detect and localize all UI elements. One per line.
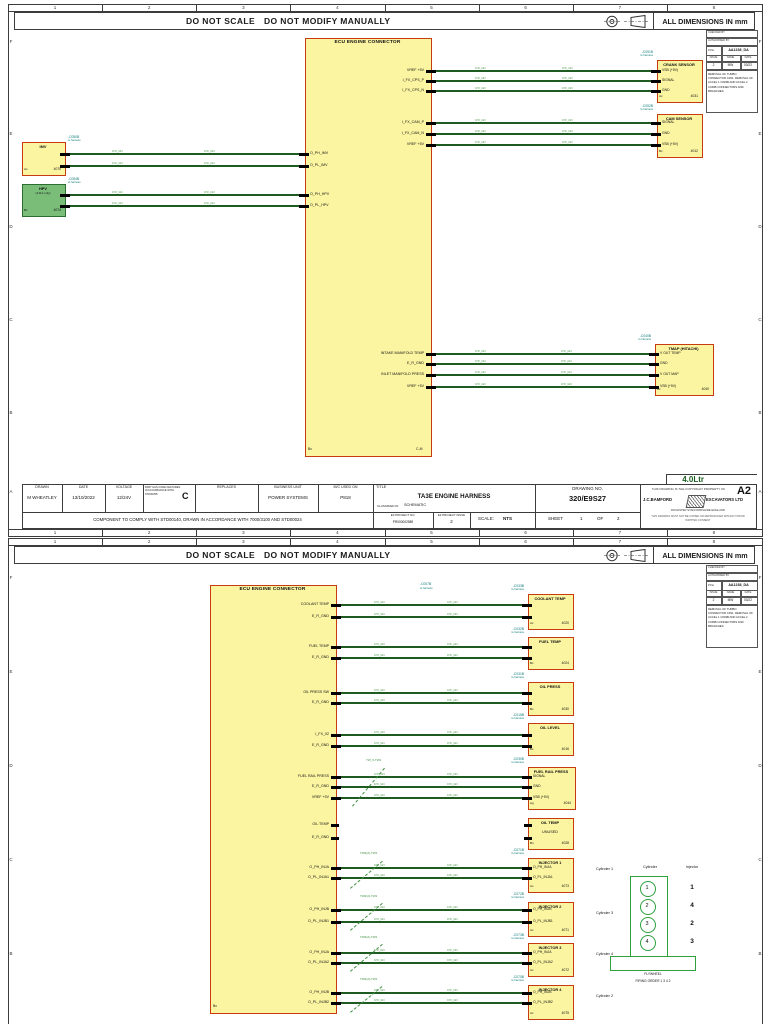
block-designator: Bx (530, 748, 534, 751)
pin-stub (524, 837, 531, 840)
block-pin-label: SIGNAL (662, 79, 674, 82)
pin-stub (429, 353, 436, 356)
block-code: 4072 (552, 969, 569, 972)
block-title: OIL TEMP (528, 821, 572, 825)
block-title: FUEL TEMP (528, 640, 572, 644)
wire-gauge-label: 0.5²_GN (561, 350, 572, 353)
block-code: 4016 (552, 748, 569, 751)
row-letter-right: D (757, 764, 763, 769)
pin-stub (429, 363, 436, 366)
company-address: ROCESTER STAFFORDSHIRE ENGLAND (642, 509, 754, 512)
wire (335, 921, 528, 922)
ecu-pin-label: I_FX_CPS_N (336, 89, 424, 93)
sheet-of-word: 1 (580, 517, 583, 522)
title-block-header: BUSINESS UNIT (258, 486, 318, 490)
pin-stub (522, 776, 529, 779)
title-block-header: VOLTAGE (105, 486, 143, 490)
pin-stub (522, 867, 529, 870)
block-title: INJECTOR 1 (528, 861, 572, 865)
wire-gauge-label: 0.5²_GN (374, 643, 385, 646)
title-block-value: M WHEATLEY (22, 496, 62, 501)
ecu-pin-label: E_R_GND (241, 701, 329, 705)
wire-gauge-label: 0.5²_GN (562, 119, 573, 122)
block-pin-label: VSB (+5V) (660, 385, 676, 388)
wire-gauge-label: 0.5²_GN (562, 77, 573, 80)
wire (335, 692, 528, 693)
wire-gauge-label: 0.5²_GN (475, 383, 486, 386)
ecu-pin-label: E_R_GND (241, 615, 329, 619)
e3-project-no: PR000002589 (373, 521, 433, 524)
pin-stub (522, 1002, 529, 1005)
pin-stub (429, 80, 436, 83)
block-designator: Ax (657, 388, 661, 391)
ecu-pin-label: FUEL TEMP (241, 645, 329, 649)
block-pin-label: GND (662, 132, 670, 135)
connector-note: to harness (613, 109, 653, 112)
ruler-number: 7 (573, 6, 667, 11)
title-block-hline (22, 512, 640, 513)
pin-stub (649, 386, 656, 389)
ecu-pin-label: O_PH_HPV (310, 193, 329, 197)
ruler-base (8, 529, 763, 530)
ruler-number: 6 (479, 531, 573, 536)
pin-stub (334, 702, 341, 705)
pin-stub (334, 657, 341, 660)
row-letter-left: D (8, 225, 14, 230)
ruler-number: 2 (102, 540, 196, 545)
ruler-number: 6 (479, 540, 573, 545)
do-not-scale-label: DO NOT SCALE (186, 17, 255, 26)
pin-stub (334, 921, 341, 924)
copyright-line: THIS DRAWING IS THE COPYRIGHT PROPERTY O… (641, 488, 736, 491)
ecu-block (305, 38, 432, 457)
wire (430, 353, 655, 354)
wire-gauge-label: 0.5²_GN (374, 742, 385, 745)
wire (430, 70, 657, 71)
connector-note: to harness (68, 140, 81, 143)
company-name-right: EXCAVATORS LTD (706, 498, 743, 502)
ecu-pin-label: VREF +5V (336, 143, 424, 147)
wire-gauge-label: 0.5²_GN (561, 371, 572, 374)
injector-number: 2 (676, 921, 708, 928)
connector-note: to harness (484, 938, 524, 941)
pin-stub (429, 90, 436, 93)
wire-gauge-label: 0.5²_GN (475, 141, 486, 144)
schematic-canvas: 12345678DO NOT SCALEDO NOT MODIFY MANUAL… (0, 0, 768, 1024)
wire (335, 616, 528, 617)
wire-gauge-label: 0.5²_GN (447, 918, 458, 921)
part-number-value: AA1238_DA (721, 584, 756, 588)
wire-gauge-label: 0.5²_GN (447, 864, 458, 867)
wire-gauge-label: 0.5²_GN (374, 783, 385, 786)
sheet-of-word: 2 (617, 517, 620, 522)
ecu-designator: Bx (213, 1005, 217, 1008)
revision-col-label: NAME (721, 57, 740, 60)
projection-icon (604, 15, 650, 28)
ecu-pin-label: O_PL_INJA1 (241, 876, 329, 880)
wire-gauge-label: 0.5²_GN (562, 141, 573, 144)
splice-label: TW_5-TW1 (366, 759, 381, 762)
block-title: CRANK SENSOR (657, 63, 701, 67)
pin-stub (649, 374, 656, 377)
revision-note: REMOVAL OF TURBO CONNECTOR C091. REMOVAL… (708, 607, 754, 628)
wire-gauge-label: 0.5²_GN (562, 130, 573, 133)
row-letter-right: E (757, 132, 763, 137)
wire-gauge-label: 0.5²_GN (475, 67, 486, 70)
block-code: 4031 (681, 95, 698, 98)
row-letter-left: B (8, 952, 14, 957)
pin-stub (522, 702, 529, 705)
block-code: 4074 (44, 209, 61, 212)
pin-stub (299, 194, 306, 197)
pin-stub (334, 692, 341, 695)
wire (430, 90, 657, 91)
wire (335, 786, 528, 787)
title-block-vline (143, 484, 144, 512)
sheet-size: A2 (733, 486, 755, 497)
block-title: OIL PRESS (528, 685, 572, 689)
block-pin-label: O_PH_INJB (533, 908, 551, 911)
wire-gauge-label: 0.5²_GN (374, 699, 385, 702)
wire (430, 80, 657, 81)
revision-value: MW (721, 64, 740, 67)
connector-note: to harness (613, 55, 653, 58)
revision-value: 03/22 (740, 64, 756, 67)
block-code: 4030 (552, 708, 569, 711)
header-sep (653, 12, 654, 30)
block-pin-label: SIGNAL (533, 775, 545, 778)
ruler-number: 1 (8, 531, 102, 536)
pin-stub (522, 992, 529, 995)
wire (335, 604, 528, 605)
pin-stub (651, 144, 658, 147)
pin-stub (522, 646, 529, 649)
jcb-logo-icon (686, 495, 707, 508)
ecu-pin-label: VREF +5V (336, 385, 424, 389)
block-code: 4040 (692, 388, 709, 391)
cylinder-number: 2 (640, 904, 654, 910)
wire-gauge-label: 0.5²_GN (447, 643, 458, 646)
pin-stub (651, 133, 658, 136)
pin-stub (522, 657, 529, 660)
pin-stub (429, 386, 436, 389)
part-number-value: AA1238_DA (721, 49, 756, 53)
revision-value: 2 (706, 64, 721, 67)
row-letter-left: F (8, 40, 14, 45)
pin-stub (299, 165, 306, 168)
connector-note: to harness (484, 677, 524, 680)
wire (430, 363, 655, 364)
row-letter-left: A (8, 490, 14, 495)
block-designator: Ax (530, 622, 534, 625)
wire-gauge-label: 0.5²_GN (374, 613, 385, 616)
wire-gauge-label: 0.5²_GN (204, 191, 215, 194)
block-title: HPV (22, 187, 64, 191)
pin-stub (334, 867, 341, 870)
ruler-number: 2 (102, 531, 196, 536)
splice-label: TW4(2)-TW1 (360, 978, 377, 981)
wire (64, 165, 305, 166)
block-designator: Bn (530, 842, 534, 845)
dimensions-label: ALL DIMENSIONS IN mm (655, 552, 755, 559)
title-block-value: 13/10/2022 (62, 496, 105, 501)
ruler-number: 3 (196, 540, 290, 545)
title-block-vline (470, 512, 471, 529)
block-pin-label: O_PH_INJA (533, 951, 551, 954)
block-pin-label: VSB (+5V) (533, 796, 549, 799)
pin-stub (334, 616, 341, 619)
block-code: 4071 (552, 929, 569, 932)
component-note: COMPONENT TO COMPLY WITH STD00140, DRAWN… (22, 518, 373, 522)
ruler-number: 4 (290, 6, 384, 11)
block-code: 4024 (552, 662, 569, 665)
wire (335, 992, 528, 993)
row-letter-left: E (8, 132, 14, 137)
wire-gauge-label: 0.5²_GN (475, 130, 486, 133)
firing-col-injector: Injector (672, 866, 712, 870)
ruler-number: 4 (290, 531, 384, 536)
wire (430, 386, 655, 387)
pin-stub (334, 786, 341, 789)
wire-gauge-label: 0.5²_GN (475, 77, 486, 80)
ruler-number: 2 (102, 6, 196, 11)
connector-note: to harness (611, 339, 651, 342)
wire-gauge-label: 0.5²_GN (475, 87, 486, 90)
block-pin-label: O_PL_INJA1 (533, 876, 553, 879)
wire-gauge-label: 0.5²_GN (561, 383, 572, 386)
pin-stub (334, 952, 341, 955)
pin-stub (63, 165, 70, 168)
block-pin-label: VSB (+5V) (662, 69, 678, 72)
ecu-pin-label: E_R_GND (241, 836, 329, 840)
wire-gauge-label: 0.5²_GN (112, 202, 123, 205)
title-block-header: DRAWN (22, 486, 62, 490)
wire (430, 133, 657, 134)
wire-gauge-label: 0.5²_GN (204, 202, 215, 205)
row-letter-left: D (8, 764, 14, 769)
wire-gauge-label: 0.5²_GN (447, 742, 458, 745)
wire (64, 194, 305, 195)
ecu-pin-label: O_PL_HPV (310, 204, 329, 208)
title-block-header: M/C USED ON (318, 486, 373, 490)
pin-stub (522, 734, 529, 737)
wire-gauge-label: 0.5²_GN (447, 654, 458, 657)
splice-label: TW4(2)-TW1 (360, 895, 377, 898)
wire (335, 776, 528, 777)
block-title: OIL LEVEL (528, 726, 572, 730)
wire-gauge-label: 0.5²_GN (447, 906, 458, 909)
revision-col-label: DATE (740, 592, 756, 595)
wire-gauge-label: 0.5²_GN (204, 150, 215, 153)
pin-stub (651, 90, 658, 93)
pin-stub (522, 616, 529, 619)
block-center-text: UNUSED (528, 831, 572, 835)
wire-gauge-label: 0.5²_GN (447, 613, 458, 616)
ruler-number: 8 (667, 540, 761, 545)
flywheel-outline (610, 956, 696, 971)
connector-note: to harness (484, 897, 524, 900)
pin-stub (429, 144, 436, 147)
row-letter-left: C (8, 858, 14, 863)
wire-gauge-label: 0.5²_GN (112, 191, 123, 194)
title-block-header: DATE (62, 486, 105, 490)
pin-stub (524, 824, 531, 827)
wire-gauge-label: 0.5²_GN (561, 360, 572, 363)
ecu-pin-label: O_PL_IMV (310, 164, 328, 168)
firing-col-cylinder: Cylinder (628, 866, 672, 870)
block-pin-label: O_PL_INJA2 (533, 961, 553, 964)
pin-stub (334, 992, 341, 995)
wire (335, 797, 528, 798)
pin-stub (334, 909, 341, 912)
row-letter-left: B (8, 411, 14, 416)
row-letter-left: F (8, 576, 14, 581)
pin-stub (332, 837, 339, 840)
block-code: 4012 (681, 150, 698, 153)
wire (430, 374, 655, 375)
drawing-title: TA3E ENGINE HARNESS (373, 494, 535, 500)
block-pin-label: O_PL_INJB2 (533, 1001, 553, 1004)
ecu-pin-label: O_PL_INJA2 (241, 961, 329, 965)
ecu-pin-label: O_PL_INJB1 (241, 920, 329, 924)
wire-gauge-label: 0.5²_GN (374, 731, 385, 734)
block-pin-label: SIGNAL (662, 121, 674, 124)
checked-by-label: CHECKED BY (708, 567, 725, 570)
cylinder-number: 4 (640, 940, 654, 946)
block-designator: Bx (24, 209, 28, 212)
block-designator: Ax (530, 1012, 534, 1015)
block-pin-label: O_PL_INJB1 (533, 920, 553, 923)
pin-stub (334, 776, 341, 779)
revision-value: 03/22 (740, 599, 756, 602)
pin-stub (522, 962, 529, 965)
block-code: 4044 (554, 802, 571, 805)
part-number-label: P/No (708, 49, 714, 52)
connector-note: to harness (68, 182, 81, 185)
block-pin-label: O_PH_INJB (533, 991, 551, 994)
ecu-pin-label: O_PL_INJB2 (241, 1001, 329, 1005)
wire (335, 702, 528, 703)
ecu-pin-label: O_PH_INJB (241, 991, 329, 995)
block-code: 4075 (552, 1012, 569, 1015)
wire-gauge-label: 0.5²_GN (112, 162, 123, 165)
pin-stub (649, 353, 656, 356)
pin-stub (299, 153, 306, 156)
wire-gauge-label: 0.5²_GN (447, 999, 458, 1002)
ecu-title: ECU ENGINE CONNECTOR (210, 588, 335, 593)
pin-stub (522, 692, 529, 695)
wire-gauge-label: 0.5²_GN (562, 87, 573, 90)
ruler-number: 8 (667, 6, 761, 11)
pin-stub (429, 374, 436, 377)
block-designator: Ax (530, 929, 534, 932)
connector-note: to harness (484, 762, 524, 765)
block-designator: Bx (530, 662, 534, 665)
sheet-of-word: OF (597, 517, 603, 522)
block-pin-label: V OUT TEMP (660, 352, 681, 355)
pin-stub (522, 952, 529, 955)
block-title: FUEL RAIL PRESS (528, 770, 574, 774)
connector-note: to harness (484, 589, 524, 592)
title-block-header: REPLACES (195, 486, 258, 490)
ecu-designator: Bx (308, 448, 312, 451)
dimensions-label: ALL DIMENSIONS IN mm (655, 18, 755, 25)
ecu-pin-label: O_PH_IMV (310, 152, 328, 156)
injector-number: 4 (676, 903, 708, 910)
row-letter-right: E (757, 670, 763, 675)
wire (64, 153, 305, 154)
authorised-by-label: AUTHORISED BY (708, 40, 729, 43)
wire-gauge-label: 0.5²_GN (374, 654, 385, 657)
authorised-by-label: AUTHORISED BY (708, 575, 729, 578)
block-code: 4020 (552, 622, 569, 625)
block-designator: Ax (530, 885, 534, 888)
scale-label: SCALE: (478, 517, 494, 522)
wire-gauge-label: 0.5²_GN (374, 918, 385, 921)
revision-note: REMOVAL OF TURBO CONNECTOR C091. REMOVAL… (708, 72, 754, 93)
ecu-pin-label: VREF +5V (336, 69, 424, 73)
ruler-number: 5 (385, 540, 479, 545)
part-code-note: PART HAS CODE FEATURES IN ACCORDANCE WIT… (145, 486, 181, 496)
wire-gauge-label: 0.5²_GN (112, 150, 123, 153)
pin-stub (63, 153, 70, 156)
cylinder-note: Cylinder 3 (596, 912, 613, 916)
do-not-modify-label: DO NOT MODIFY MANUALLY (264, 551, 390, 560)
row-letter-left: E (8, 670, 14, 675)
ruler-number: 6 (479, 6, 573, 11)
block-pin-label: GND (660, 362, 668, 365)
drawing-no-label: DRAWING NO. (535, 487, 640, 492)
row-letter-right: C (757, 858, 763, 863)
wire (335, 909, 528, 910)
checked-by-label: CHECKED BY (708, 32, 725, 35)
wire-gauge-label: 0.5²_GN (447, 699, 458, 702)
pin-stub (522, 921, 529, 924)
wire-gauge-label: 0.5²_GN (475, 360, 486, 363)
block-pin-label: GND (533, 785, 541, 788)
ecu-pin-label: O_PH_INJB (241, 908, 329, 912)
connector-note: to harness (484, 980, 524, 983)
block-title: TMAP (HITACHI) (655, 347, 712, 351)
block-title: IMV (22, 145, 64, 149)
block-designator: Bx (659, 150, 663, 153)
pin-stub (429, 70, 436, 73)
connector-note: to harness (484, 718, 524, 721)
ecu-pin-label: OIL TEMP (241, 823, 329, 827)
ruler-number: 4 (290, 540, 384, 545)
wire (430, 122, 657, 123)
connector-note: to harness (484, 632, 524, 635)
wire-gauge-label: 0.5²_GN (374, 874, 385, 877)
connector-note: to harness (420, 588, 433, 591)
pin-stub (299, 205, 306, 208)
revision-col-label: ISSUE (706, 57, 721, 60)
row-letter-right: B (757, 952, 763, 957)
pin-stub (334, 1002, 341, 1005)
sheet-of-word: SHEET (548, 517, 563, 522)
wire-gauge-label: 0.5²_GN (447, 874, 458, 877)
revision-value: MW (721, 599, 740, 602)
pin-stub (334, 877, 341, 880)
row-letter-right: A (757, 490, 763, 495)
ecu-pin-label: INTAKE MANIFOLD TEMP (336, 352, 424, 356)
ruler-number: 3 (196, 6, 290, 11)
row-letter-left: C (8, 318, 14, 323)
ruler-number: 8 (667, 531, 761, 536)
title-label: TITLE (376, 486, 386, 490)
splice-label: TW4(2)-TW1 (360, 852, 377, 855)
block-title: COOLANT TEMP (528, 597, 572, 601)
